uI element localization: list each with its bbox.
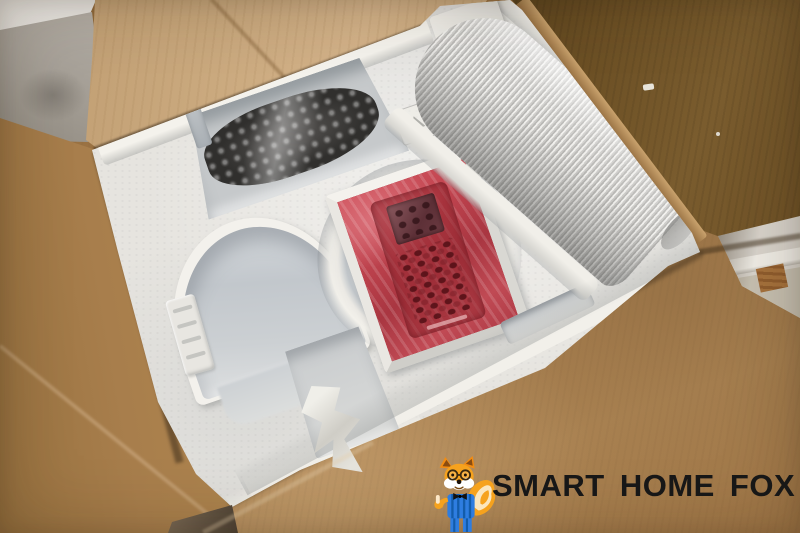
tape-fragment-small	[716, 132, 720, 136]
sofa-fold-shadow	[8, 60, 98, 130]
remote-keypad	[395, 237, 474, 325]
logo-text: SMART HOME FOX	[492, 468, 795, 504]
fox-mascot-icon	[424, 453, 498, 533]
unboxing-photo: SMART HOME FOX	[0, 0, 800, 533]
remote-display	[386, 192, 446, 245]
smart-home-fox-watermark: SMART HOME FOX	[420, 450, 800, 533]
